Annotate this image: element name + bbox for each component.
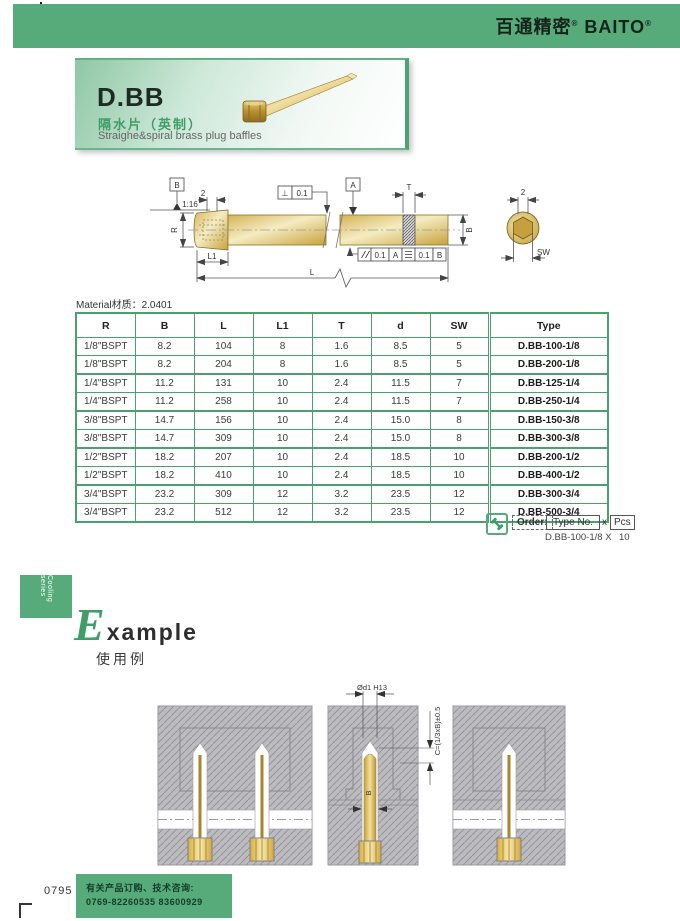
dim-b-label: B	[465, 227, 474, 232]
spec-cell: 3/8"BSPT	[76, 430, 135, 449]
spec-cell: 10	[253, 467, 312, 486]
table-row: 3/8"BSPT14.7156102.415.08D.BB-150-3/8	[76, 411, 608, 430]
order-times: x	[602, 517, 607, 528]
spec-cell: 2.4	[312, 393, 371, 412]
spec-cell: 5	[430, 338, 489, 356]
spec-cell: 10	[253, 411, 312, 430]
material-label: Material材质：2.0401	[76, 296, 172, 311]
col-header-b: B	[135, 313, 194, 338]
spec-cell: 10	[253, 374, 312, 393]
spec-table-body: 1/8"BSPT8.210481.68.55D.BB-100-1/81/8"BS…	[76, 338, 608, 523]
spec-cell: 11.2	[135, 393, 194, 412]
par-datum: A	[393, 251, 399, 260]
spec-cell: 18.5	[371, 448, 430, 467]
table-row: 1/2"BSPT18.2410102.418.510D.BB-400-1/2	[76, 467, 608, 486]
spec-cell: 1.6	[312, 338, 371, 356]
spec-cell: 23.5	[371, 504, 430, 523]
spec-cell: 1/4"BSPT	[76, 374, 135, 393]
spec-cell: 3.2	[312, 504, 371, 523]
spec-cell: 8.2	[135, 338, 194, 356]
table-row: 1/4"BSPT11.2258102.411.57D.BB-250-1/4	[76, 393, 608, 412]
dim-2-label: 2	[201, 189, 206, 198]
table-row: 1/2"BSPT18.2207102.418.510D.BB-200-1/2	[76, 448, 608, 467]
spec-cell: 3.2	[312, 485, 371, 504]
spec-cell: 14.7	[135, 411, 194, 430]
datum-a-label: A	[350, 181, 356, 190]
table-row: 1/4"BSPT11.2131102.411.57D.BB-125-1/4	[76, 374, 608, 393]
type-cell: D.BB-100-1/8	[489, 338, 608, 356]
table-row: 3/4"BSPT23.2309123.223.512D.BB-300-3/4	[76, 485, 608, 504]
example-cn-label: 使用例	[96, 649, 147, 669]
product-name-en: Straighe&spiral brass plug baffles	[98, 130, 262, 142]
catalog-page: 百通精密® BAITO® D.BB 隔水片（英制） Straighe&spira…	[0, 0, 680, 921]
series-tab: Cooling series	[20, 575, 72, 618]
type-cell: D.BB-200-1/2	[489, 448, 608, 467]
spec-cell: 2.4	[312, 374, 371, 393]
perp-value: 0.1	[296, 189, 308, 198]
type-cell: D.BB-125-1/4	[489, 374, 608, 393]
example-rest: xample	[107, 619, 198, 646]
spec-cell: 1/8"BSPT	[76, 338, 135, 356]
table-row: 1/8"BSPT8.210481.68.55D.BB-100-1/8	[76, 338, 608, 356]
technical-drawing: B 1:16 2 R ⊥ 0.1 A T B 0.1 A 0.1 B L1 L …	[150, 170, 620, 295]
spec-cell: 23.2	[135, 485, 194, 504]
col-header-sw: SW	[430, 313, 489, 338]
spec-cell: 12	[430, 504, 489, 523]
contact-box: 有关产品订购、技术咨询: 0769-82260535 83600929	[76, 874, 232, 918]
spec-cell: 2.4	[312, 467, 371, 486]
type-cell: D.BB-300-3/4	[489, 485, 608, 504]
type-cell: D.BB-400-1/2	[489, 467, 608, 486]
product-banner: D.BB 隔水片（英制） Straighe&spiral brass plug …	[75, 58, 409, 150]
spec-cell: 1.6	[312, 356, 371, 375]
spec-cell: 8	[253, 356, 312, 375]
spec-cell: 10	[430, 467, 489, 486]
type-cell: D.BB-200-1/8	[489, 356, 608, 375]
brand-logo: 百通精密® BAITO®	[496, 13, 653, 39]
phone-icon	[489, 516, 505, 532]
table-row: 1/8"BSPT8.220481.68.55D.BB-200-1/8	[76, 356, 608, 375]
brand-en: BAITO	[584, 17, 645, 37]
spec-cell: 11.5	[371, 393, 430, 412]
spec-cell: 8.5	[371, 338, 430, 356]
spec-cell: 156	[194, 411, 253, 430]
contact-line1: 有关产品订购、技术咨询:	[86, 881, 226, 895]
str-value: 0.1	[418, 251, 430, 260]
table-header-row: R B L L1 T d SW Type	[76, 313, 608, 338]
spec-cell: 1/8"BSPT	[76, 356, 135, 375]
type-cell: D.BB-250-1/4	[489, 393, 608, 412]
spec-cell: 10	[253, 448, 312, 467]
spec-cell: 8	[253, 338, 312, 356]
str-datum: B	[437, 251, 442, 260]
pcs-box: Pcs	[610, 515, 635, 530]
col-header-t: T	[312, 313, 371, 338]
usage-example-diagrams: Ød1 H13 C=(1/3xB)±0.5 B	[150, 681, 575, 873]
example-block-1	[158, 706, 312, 865]
dim-d1-label: Ød1 H13	[357, 683, 387, 692]
spec-cell: 3/4"BSPT	[76, 485, 135, 504]
spec-cell: 12	[253, 485, 312, 504]
example-block-3	[453, 706, 565, 865]
reg-mark: ®	[645, 19, 652, 28]
spec-cell: 15.0	[371, 411, 430, 430]
spec-cell: 18.5	[371, 467, 430, 486]
phone-box	[486, 513, 508, 535]
spec-cell: 204	[194, 356, 253, 375]
col-header-r: R	[76, 313, 135, 338]
reg-mark: ®	[572, 19, 579, 28]
col-header-type: Type	[489, 313, 608, 338]
spec-cell: 8	[430, 411, 489, 430]
spec-cell: 11.5	[371, 374, 430, 393]
spec-cell: 1/2"BSPT	[76, 448, 135, 467]
spec-cell: 131	[194, 374, 253, 393]
col-header-d: d	[371, 313, 430, 338]
spec-table: R B L L1 T d SW Type 1/8"BSPT8.210481.68…	[75, 312, 609, 523]
spec-cell: 10	[253, 393, 312, 412]
spec-cell: 18.2	[135, 448, 194, 467]
table-row: 3/8"BSPT14.7309102.415.08D.BB-300-3/8	[76, 430, 608, 449]
spec-cell: 15.0	[371, 430, 430, 449]
series-tab-label: Cooling series	[39, 575, 53, 618]
dim-2-end-label: 2	[521, 188, 526, 197]
spec-cell: 23.2	[135, 504, 194, 523]
col-header-l: L	[194, 313, 253, 338]
dim-t-label: T	[407, 183, 412, 192]
spec-cell: 1/2"BSPT	[76, 467, 135, 486]
taper-label: 1:16	[182, 200, 198, 209]
dim-sw-label: SW	[537, 248, 550, 257]
spec-cell: 10	[253, 430, 312, 449]
spec-cell: 7	[430, 393, 489, 412]
spec-cell: 23.5	[371, 485, 430, 504]
spec-cell: 8.5	[371, 356, 430, 375]
spec-cell: 8.2	[135, 356, 194, 375]
spec-cell: 12	[253, 504, 312, 523]
spec-cell: 14.7	[135, 430, 194, 449]
spec-cell: 2.4	[312, 430, 371, 449]
product-code: D.BB	[97, 82, 165, 113]
dim-l-label: L	[310, 268, 315, 277]
spec-cell: 12	[430, 485, 489, 504]
datum-b-label: B	[174, 181, 179, 190]
order-example-type: D.BB-100-1/8 X	[545, 532, 612, 543]
plug-side-view	[188, 210, 460, 250]
crop-mark-bottom-left	[19, 903, 32, 918]
example-heading: Example	[74, 602, 198, 648]
spec-cell: 104	[194, 338, 253, 356]
page-number: 0795	[44, 885, 72, 897]
spec-cell: 309	[194, 485, 253, 504]
spec-cell: 2.4	[312, 448, 371, 467]
spec-cell: 1/4"BSPT	[76, 393, 135, 412]
spec-cell: 512	[194, 504, 253, 523]
type-cell: D.BB-150-3/8	[489, 411, 608, 430]
product-photo-brass-plug	[235, 66, 370, 128]
spec-cell: 8	[430, 430, 489, 449]
dim-l1-label: L1	[208, 252, 217, 261]
brand-cn: 百通精密	[496, 17, 572, 37]
order-example-qty: 10	[619, 532, 630, 543]
dim-c-label: C=(1/3xB)±0.5	[433, 707, 442, 756]
example-block-2: Ød1 H13 C=(1/3xB)±0.5 B	[328, 683, 442, 865]
spec-cell: 11.2	[135, 374, 194, 393]
perp-symbol: ⊥	[282, 189, 289, 198]
header-bar: 百通精密® BAITO®	[13, 4, 680, 48]
spec-cell: 5	[430, 356, 489, 375]
spec-cell: 2.4	[312, 411, 371, 430]
spec-cell: 258	[194, 393, 253, 412]
spec-cell: 3/8"BSPT	[76, 411, 135, 430]
spec-cell: 10	[430, 448, 489, 467]
par-value: 0.1	[374, 251, 386, 260]
type-cell: D.BB-300-3/8	[489, 430, 608, 449]
spec-cell: 7	[430, 374, 489, 393]
contact-line2: 0769-82260535 83600929	[86, 895, 226, 909]
spec-cell: 309	[194, 430, 253, 449]
col-header-l1: L1	[253, 313, 312, 338]
baffle-b-label: B	[364, 790, 373, 795]
spec-cell: 3/4"BSPT	[76, 504, 135, 523]
spec-cell: 18.2	[135, 467, 194, 486]
dim-r-label: R	[170, 227, 179, 233]
example-initial: E	[74, 602, 105, 648]
spec-cell: 410	[194, 467, 253, 486]
spec-cell: 207	[194, 448, 253, 467]
type-no-box: Type No.	[546, 515, 600, 530]
